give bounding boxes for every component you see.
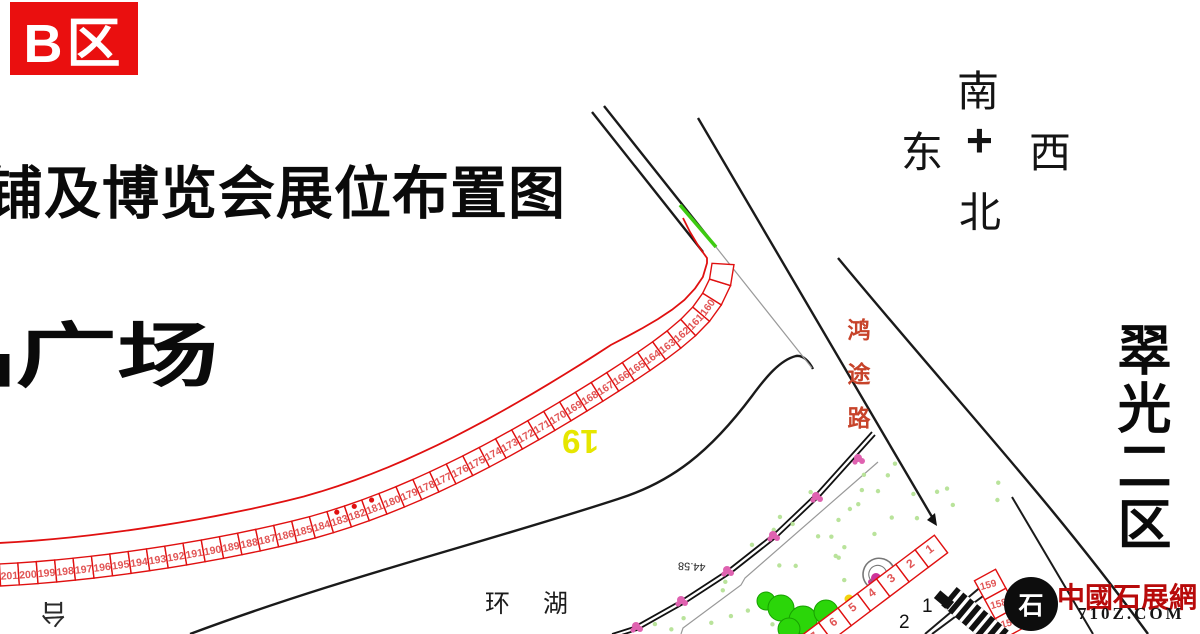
- page-title: 铺及博览会展位布置图: [0, 148, 566, 230]
- watermark-site-url: 710Z.COM: [1078, 604, 1185, 624]
- curb-line-left: [592, 112, 703, 252]
- road-name-label: 鸿途路: [840, 318, 874, 450]
- watermark-logo-icon: 石: [1004, 577, 1058, 631]
- booth-number: 195: [111, 558, 130, 572]
- dimension-label: 44.58: [678, 559, 706, 572]
- booth-number: 196: [93, 561, 112, 575]
- strip-main: 2012001991981971961951941931921911901891…: [0, 218, 734, 586]
- compass-cross-icon: +: [966, 113, 993, 167]
- booth-dot: [369, 497, 374, 502]
- booth-number: 200: [19, 568, 37, 581]
- booth-number: 197: [74, 563, 93, 577]
- compass-west: 西: [1029, 119, 1071, 180]
- booth-dot: [334, 510, 339, 515]
- booth-dot: [352, 504, 357, 509]
- green-curb-mark: [680, 205, 716, 247]
- booth-number: 201: [0, 570, 18, 583]
- booth-number: 198: [56, 565, 75, 579]
- zone-badge: B区: [10, 2, 138, 75]
- compass-south: 南: [957, 58, 999, 119]
- plot-number-2: 2: [899, 612, 910, 634]
- plot-number-1: 1: [922, 596, 933, 618]
- plaza-label: 品广场: [0, 300, 219, 401]
- compass-east: 东: [901, 119, 943, 180]
- logo-glyph: 石: [1018, 586, 1043, 622]
- district-label: 翠光二区: [1100, 322, 1179, 554]
- booth-layout-map: 2012001991981971961951941931921911901891…: [0, 0, 1200, 634]
- booth-number: 194: [130, 556, 149, 570]
- road-left-edge: [698, 118, 935, 522]
- lake-label: 环 湖: [485, 584, 581, 620]
- flower-fence: [612, 432, 875, 634]
- stage-label: 台: [40, 596, 67, 634]
- row-19-label: 19: [562, 422, 599, 460]
- booth-number: 199: [37, 567, 56, 580]
- compass-north: 北: [959, 179, 1001, 240]
